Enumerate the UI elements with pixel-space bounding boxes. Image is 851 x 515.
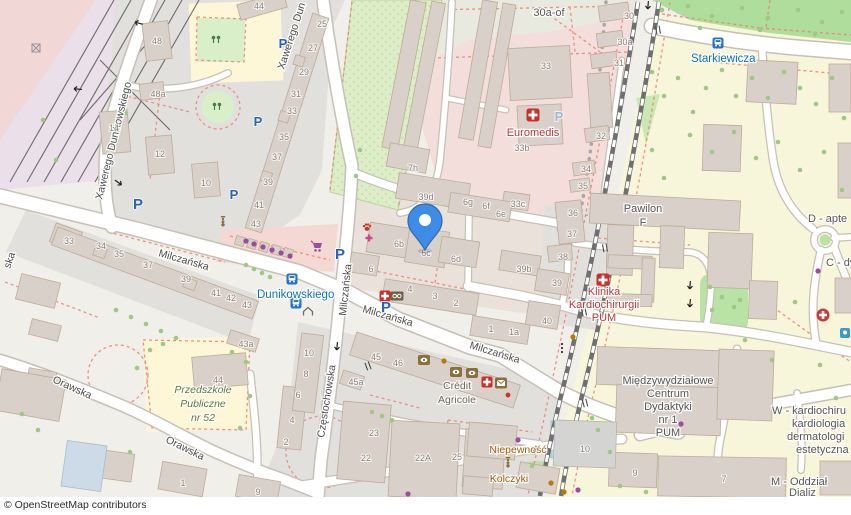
tree-dot [596, 428, 601, 433]
tree-dot [618, 484, 623, 489]
tree-dot [244, 360, 249, 365]
building-number: 6 [295, 390, 300, 400]
building-number: 39 [552, 278, 562, 288]
tree-dot [148, 348, 153, 353]
playground-area [197, 18, 245, 62]
building-number: 6e [496, 209, 506, 219]
building-number: 1 [180, 478, 185, 488]
tree-dot [174, 336, 179, 341]
tree-dot [710, 308, 715, 313]
building-number: 44 [254, 1, 264, 11]
pharmacy-icon [482, 377, 493, 388]
bank-label: Agricole [438, 394, 476, 406]
tree-dot [129, 315, 134, 320]
tree-dot [159, 329, 164, 334]
shop-dot [405, 491, 410, 496]
building-number: 37 [272, 152, 282, 162]
building-number: 22A [415, 453, 431, 463]
tree-dot [758, 28, 763, 33]
parking-icon: P [555, 109, 564, 124]
building-number: 43 [251, 219, 261, 229]
building-number: 10 [201, 178, 211, 188]
tree-dot [691, 110, 696, 115]
tree-dot [114, 308, 119, 313]
place-label: PUM [656, 427, 680, 439]
parking-icon: P [230, 187, 239, 202]
tree-dot [840, 188, 845, 193]
tree-dot [798, 168, 803, 173]
tree-dot [834, 396, 839, 401]
tree-dot [710, 14, 715, 19]
poi-dot-red [506, 393, 511, 398]
place-label: dermatologi [787, 431, 844, 443]
hospital-icon [527, 109, 540, 122]
building-number: 39d [418, 192, 433, 202]
building-number: 3 [432, 291, 437, 301]
shop-dot [287, 253, 292, 258]
tree-dot [252, 267, 257, 272]
tree-dot [248, 394, 253, 399]
tree-dot [238, 426, 243, 431]
tree-dot [650, 70, 655, 75]
building-number: 14 [109, 123, 119, 133]
building-number: 48 [152, 36, 162, 46]
school-label: Przedszkole [174, 384, 231, 396]
tree-dot [796, 8, 801, 13]
bus-stop-icon [713, 38, 724, 49]
building-number: 35 [279, 132, 289, 142]
tree-dot [676, 76, 681, 81]
building-number: 2 [283, 437, 288, 447]
building-number: 46 [393, 358, 403, 368]
tree-dot [662, 176, 667, 181]
bank-icon [418, 355, 430, 365]
hospital-label: PUM [592, 312, 616, 324]
building-number: 41 [211, 288, 221, 298]
building-number: 48a [150, 89, 165, 99]
building-number: 1 [488, 324, 493, 334]
tree-dot [770, 358, 775, 363]
tree-dot [698, 26, 703, 31]
bus-stop-icon [287, 274, 298, 285]
tree-dot [820, 20, 825, 25]
building-number: 44 [213, 375, 223, 385]
building-number: 30a [617, 37, 632, 47]
hospital-label: Klinika [588, 286, 621, 298]
emergency-pharmacy-icon [817, 309, 830, 322]
building-number: 34 [96, 241, 106, 251]
tree-dot [822, 150, 827, 155]
tree-dot [644, 490, 649, 495]
place-label: Centrum [647, 388, 689, 400]
place-label: D - apte [808, 213, 847, 225]
building-number: 4 [407, 284, 412, 294]
place-label: kardiologia [792, 418, 846, 430]
optician-icon [391, 292, 404, 301]
bank-icon [466, 368, 478, 378]
tree-dot [754, 156, 759, 161]
building-number: 39 [181, 274, 191, 284]
building-number: 2 [453, 298, 458, 308]
building-number: 45 [371, 352, 381, 362]
poi-dot [570, 334, 575, 339]
tree-dot [36, 428, 41, 433]
post-office-icon [495, 378, 507, 389]
tree-dot [814, 102, 819, 107]
building-number: 9 [255, 487, 260, 497]
tree-dot [41, 118, 46, 123]
tree-dot [798, 86, 803, 91]
tree-dot [842, 116, 847, 121]
building-number: 39b [516, 264, 531, 274]
building-number: 31 [291, 89, 301, 99]
tree-dot [686, 4, 691, 9]
poi-dot [561, 489, 566, 494]
map-viewport[interactable]: Xawerego DunikowskiegoXawerego DunMilcza… [0, 0, 851, 515]
building-number: 33 [287, 106, 297, 116]
place-label: C - dy [826, 257, 851, 269]
place-label: Dydaktyki [644, 401, 692, 413]
tree-dot [230, 350, 235, 355]
building-number: 45a [348, 377, 363, 387]
tree-dot [688, 133, 693, 138]
place-label: Dializ [789, 487, 816, 497]
parking-icon: P [381, 299, 391, 316]
shop-dot [575, 487, 580, 492]
parking-icon: P [133, 196, 143, 213]
building-number: 33c [511, 199, 526, 209]
building-number: 38 [558, 252, 568, 262]
building-number: 25 [317, 19, 327, 29]
building-number: 6b [394, 239, 404, 249]
tree-dot [144, 322, 149, 327]
building-number: 25 [452, 452, 462, 462]
tree-dot [704, 86, 709, 91]
tree-dot [380, 414, 385, 419]
parking-icon: P [335, 246, 345, 263]
building-number: 6f [482, 201, 490, 211]
building-number: 10 [580, 444, 590, 454]
tree-dot [20, 412, 25, 417]
tree-dot [720, 68, 725, 73]
tree-dot [740, 6, 745, 11]
tree-dot [260, 271, 265, 276]
building-number: 31 [614, 58, 624, 68]
building-number: 6 [368, 264, 373, 274]
tree-dot [650, 148, 655, 153]
tree-dot [732, 305, 737, 310]
tree-dot [128, 450, 133, 455]
place-label: nr 1 [659, 414, 678, 426]
shop-label: Kolczyki [490, 473, 529, 485]
parking-icon: P [254, 114, 263, 129]
shop-dot [251, 241, 256, 246]
building-number: 6d [451, 254, 461, 264]
building-number: 41 [254, 200, 264, 210]
tree-dot [813, 32, 818, 37]
tree-dot [660, 8, 665, 13]
tree-dot [743, 338, 748, 343]
building-number: 33 [541, 61, 551, 71]
hospital-label: Euromedis [507, 127, 560, 139]
attribution-text: © OpenStreetMap contributors [4, 499, 147, 511]
bank-icon [450, 367, 462, 377]
building-number: 22 [361, 453, 371, 463]
place-label: Międzywydziałowe [622, 375, 713, 387]
place-label: estetyczna [796, 444, 849, 456]
tree-dot [530, 464, 535, 469]
tree-dot [161, 342, 166, 347]
tree-dot [840, 10, 845, 15]
building-number: 23 [369, 428, 379, 438]
attribution-bar: © OpenStreetMap contributors [0, 497, 851, 515]
building-number: 32 [596, 131, 606, 141]
tree-dot [776, 140, 781, 145]
tree-dot [766, 96, 771, 101]
tree-dot [830, 76, 835, 81]
building-number: 27 [308, 43, 318, 53]
transit-label: Dunikowskiego [257, 289, 334, 301]
tree-dot [268, 275, 273, 280]
traffic-signal-icon [561, 343, 563, 353]
place-label: W - kardiochiru [772, 405, 846, 417]
building-number: 35 [578, 181, 588, 191]
tree-dot [358, 148, 363, 153]
building-number: 12 [155, 149, 165, 159]
building-number: 30 [624, 11, 634, 21]
building-number: 37 [567, 229, 577, 239]
building-number: 33b [514, 143, 529, 153]
shop-label: Niepewność [489, 444, 546, 456]
tree-dot [732, 130, 737, 135]
tree-dot [608, 450, 613, 455]
hospital-label: Kardiochirurgii [569, 299, 639, 311]
round-park [202, 91, 234, 123]
tree-dot [793, 300, 798, 305]
building-number: 7h [408, 163, 418, 173]
hospital-icon [597, 274, 610, 287]
building-number: 40 [542, 316, 552, 326]
building-number: 37 [143, 260, 153, 270]
transit-label: Starkiewicza [691, 53, 756, 65]
poi-dot [548, 480, 553, 485]
building-number: 43 [242, 300, 252, 310]
bank-label: Crédit [443, 380, 471, 392]
shop-dot [815, 268, 820, 273]
map-canvas[interactable]: Xawerego DunikowskiegoXawerego DunMilcza… [0, 0, 851, 497]
shop-dot [243, 238, 248, 243]
parking-icon: P [279, 36, 288, 51]
building-number: 42 [226, 293, 236, 303]
tree-dot [782, 70, 787, 75]
tree-dot [135, 366, 140, 371]
building-number: 10 [304, 348, 314, 358]
fountain-icon [840, 328, 850, 338]
building-number: 36 [568, 208, 578, 218]
shop-dot [278, 250, 283, 255]
tree-dot [390, 418, 395, 423]
poi-dot [441, 358, 446, 363]
building-number: 6g [463, 197, 473, 207]
shop-dot [260, 244, 265, 249]
tree-dot [54, 158, 59, 163]
building-number: 4 [289, 415, 294, 425]
tree-dot [244, 263, 249, 268]
tree-dot [818, 363, 823, 368]
tree-dot [354, 174, 359, 179]
building-number: 34 [581, 164, 591, 174]
tree-dot [662, 94, 667, 99]
building-number: 29 [299, 67, 309, 77]
building-number: 35 [114, 249, 124, 259]
shop-dot [678, 421, 683, 426]
tree-dot [750, 76, 755, 81]
building-number: 33 [64, 236, 74, 246]
place-label: F [640, 217, 647, 229]
tree-dot [708, 285, 713, 290]
tree-dot [734, 94, 739, 99]
place-label: 30a-of [533, 7, 565, 19]
building-number: 7 [721, 474, 726, 484]
school-label: Publiczne [180, 398, 226, 410]
tree-dot [720, 295, 725, 300]
building-number: 9 [632, 468, 637, 478]
school-label: nr 52 [191, 412, 215, 424]
shop-dot [515, 437, 520, 442]
shop-dot [269, 247, 274, 252]
building-number: 43a [238, 339, 253, 349]
tree-dot [766, 16, 771, 21]
tree-dot [710, 150, 715, 155]
tree-dot [738, 298, 743, 303]
tree-dot [370, 410, 375, 415]
place-label: Pawilon [624, 203, 663, 215]
tree-dot [590, 416, 595, 421]
building-number: 39 [263, 177, 273, 187]
building-number: 8 [303, 369, 308, 379]
building-number: 1a [509, 327, 519, 337]
